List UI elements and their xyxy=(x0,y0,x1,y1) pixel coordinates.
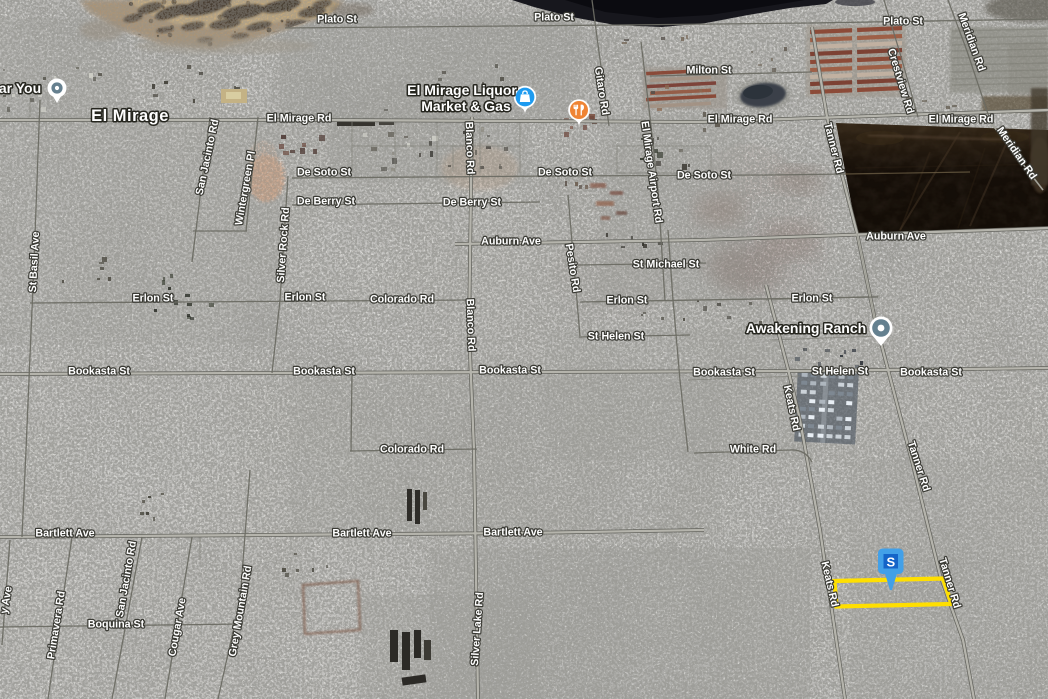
svg-text:Bartlett Ave: Bartlett Ave xyxy=(332,528,391,540)
svg-text:El Mirage Liquor: El Mirage Liquor xyxy=(407,82,517,98)
svg-text:Auburn Ave: Auburn Ave xyxy=(866,231,926,243)
svg-text:Bookasta St: Bookasta St xyxy=(693,367,755,379)
svg-text:Erlon St: Erlon St xyxy=(607,295,648,307)
svg-text:Bookasta St: Bookasta St xyxy=(293,366,355,378)
svg-text:El Mirage Rd: El Mirage Rd xyxy=(708,114,773,126)
svg-text:Blanco Rd: Blanco Rd xyxy=(464,298,478,351)
svg-text:St Helen St: St Helen St xyxy=(812,366,869,378)
svg-text:Bartlett Ave: Bartlett Ave xyxy=(35,528,94,540)
svg-text:ar You: ar You xyxy=(0,80,41,96)
svg-text:De Soto St: De Soto St xyxy=(297,167,351,179)
svg-text:Colorado Rd: Colorado Rd xyxy=(370,294,434,306)
svg-text:S: S xyxy=(886,554,895,569)
svg-text:De Berry St: De Berry St xyxy=(297,196,356,208)
svg-text:St Helen St: St Helen St xyxy=(588,331,645,343)
svg-text:Plato St: Plato St xyxy=(317,14,357,26)
svg-text:Plato St: Plato St xyxy=(883,16,923,28)
svg-text:Bookasta St: Bookasta St xyxy=(68,366,130,378)
svg-text:Market & Gas: Market & Gas xyxy=(421,98,511,114)
svg-text:Erlon St: Erlon St xyxy=(285,292,326,304)
svg-text:Bookasta St: Bookasta St xyxy=(900,367,962,379)
svg-text:St Michael St: St Michael St xyxy=(633,259,700,271)
svg-text:White Rd: White Rd xyxy=(730,444,776,456)
svg-text:Blanco Rd: Blanco Rd xyxy=(463,121,477,174)
svg-text:El Mirage: El Mirage xyxy=(91,107,169,125)
svg-text:El Mirage Rd: El Mirage Rd xyxy=(267,113,332,125)
svg-text:Colorado Rd: Colorado Rd xyxy=(380,444,444,456)
svg-text:El Mirage Rd: El Mirage Rd xyxy=(929,114,994,126)
svg-text:Plato St: Plato St xyxy=(534,12,574,24)
svg-text:Bookasta St: Bookasta St xyxy=(479,365,541,377)
svg-text:Milton St: Milton St xyxy=(686,65,732,77)
svg-text:Auburn Ave: Auburn Ave xyxy=(481,236,541,248)
svg-text:De Soto St: De Soto St xyxy=(538,167,592,179)
svg-text:Bartlett Ave: Bartlett Ave xyxy=(483,527,542,539)
svg-text:Erlon St: Erlon St xyxy=(792,293,833,305)
svg-text:Awakening Ranch: Awakening Ranch xyxy=(746,320,866,336)
svg-text:Erlon St: Erlon St xyxy=(133,293,174,305)
svg-text:Boquina St: Boquina St xyxy=(88,619,145,631)
svg-text:De Soto St: De Soto St xyxy=(677,170,731,182)
svg-text:De Berry St: De Berry St xyxy=(443,197,502,209)
